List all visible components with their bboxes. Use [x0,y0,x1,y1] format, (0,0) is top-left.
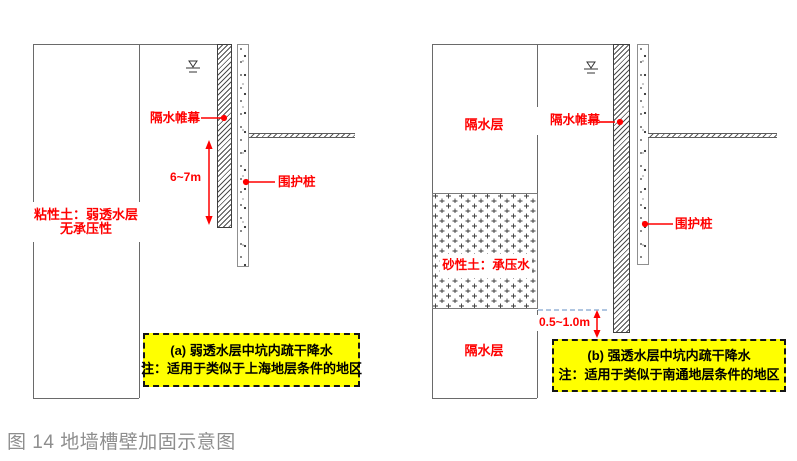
dimension-arrow-b [594,310,601,338]
floor-slab-b [648,133,777,138]
trench-wall-line-b-upper [537,44,538,107]
water-curtain-b [613,44,630,333]
soil-label-line1: 粘性土：弱透水层 [34,208,138,222]
soil-top-edge-a [33,44,217,45]
retaining-pile-a [237,44,249,267]
figure-canvas: 粘性土：弱透水层 无承压性 隔水帷幕 6~7m 围护桩 (a) 弱透水层中坑内疏… [0,0,797,461]
curtain-label-b: 隔水帷幕 [533,107,600,135]
water-table-icon [584,62,598,73]
sand-layer-block [432,193,538,309]
soil-bottom-edge-a [33,398,139,399]
pile-label-a: 围护桩 [278,175,322,190]
note-text-a: 注：适用于类似于上海地层条件的地区 [141,361,362,377]
note-box-a: (a) 弱透水层中坑内疏干降水 注：适用于类似于上海地层条件的地区 [143,333,360,387]
water-curtain-a [217,44,232,228]
dimension-label-a: 6~7m [170,170,201,185]
note-text-b: 注：适用于类似于南通地层条件的地区 [558,367,779,383]
dimension-arrow-a [205,140,212,225]
sand-layer-label-b: 砂性土：承压水 [440,254,532,278]
trench-wall-line-b-mid [537,135,538,193]
retaining-pile-b [637,44,649,265]
soil-bottom-edge-b [432,398,537,399]
pile-label-b: 围护桩 [675,217,719,232]
figure-caption: 图 14 地墙槽壁加固示意图 [7,427,236,454]
soil-label-line2: 无承压性 [60,222,112,236]
floor-slab-a [249,133,355,138]
curtain-label-a: 隔水帷幕 [147,111,200,126]
soil-top-edge-b [432,44,613,45]
lower-layer-label-b: 隔水层 [454,344,514,359]
water-table-icon [186,61,200,72]
dimension-label-b: 0.5~1.0m [535,315,594,331]
upper-layer-label-b: 隔水层 [454,118,514,133]
note-box-b: (b) 强透水层中坑内疏干降水 注：适用于类似于南通地层条件的地区 [552,339,786,392]
note-title-a: (a) 弱透水层中坑内疏干降水 [170,343,333,359]
note-title-b: (b) 强透水层中坑内疏干降水 [587,348,750,364]
soil-layer-label-a: 粘性土：弱透水层 无承压性 [28,202,144,242]
